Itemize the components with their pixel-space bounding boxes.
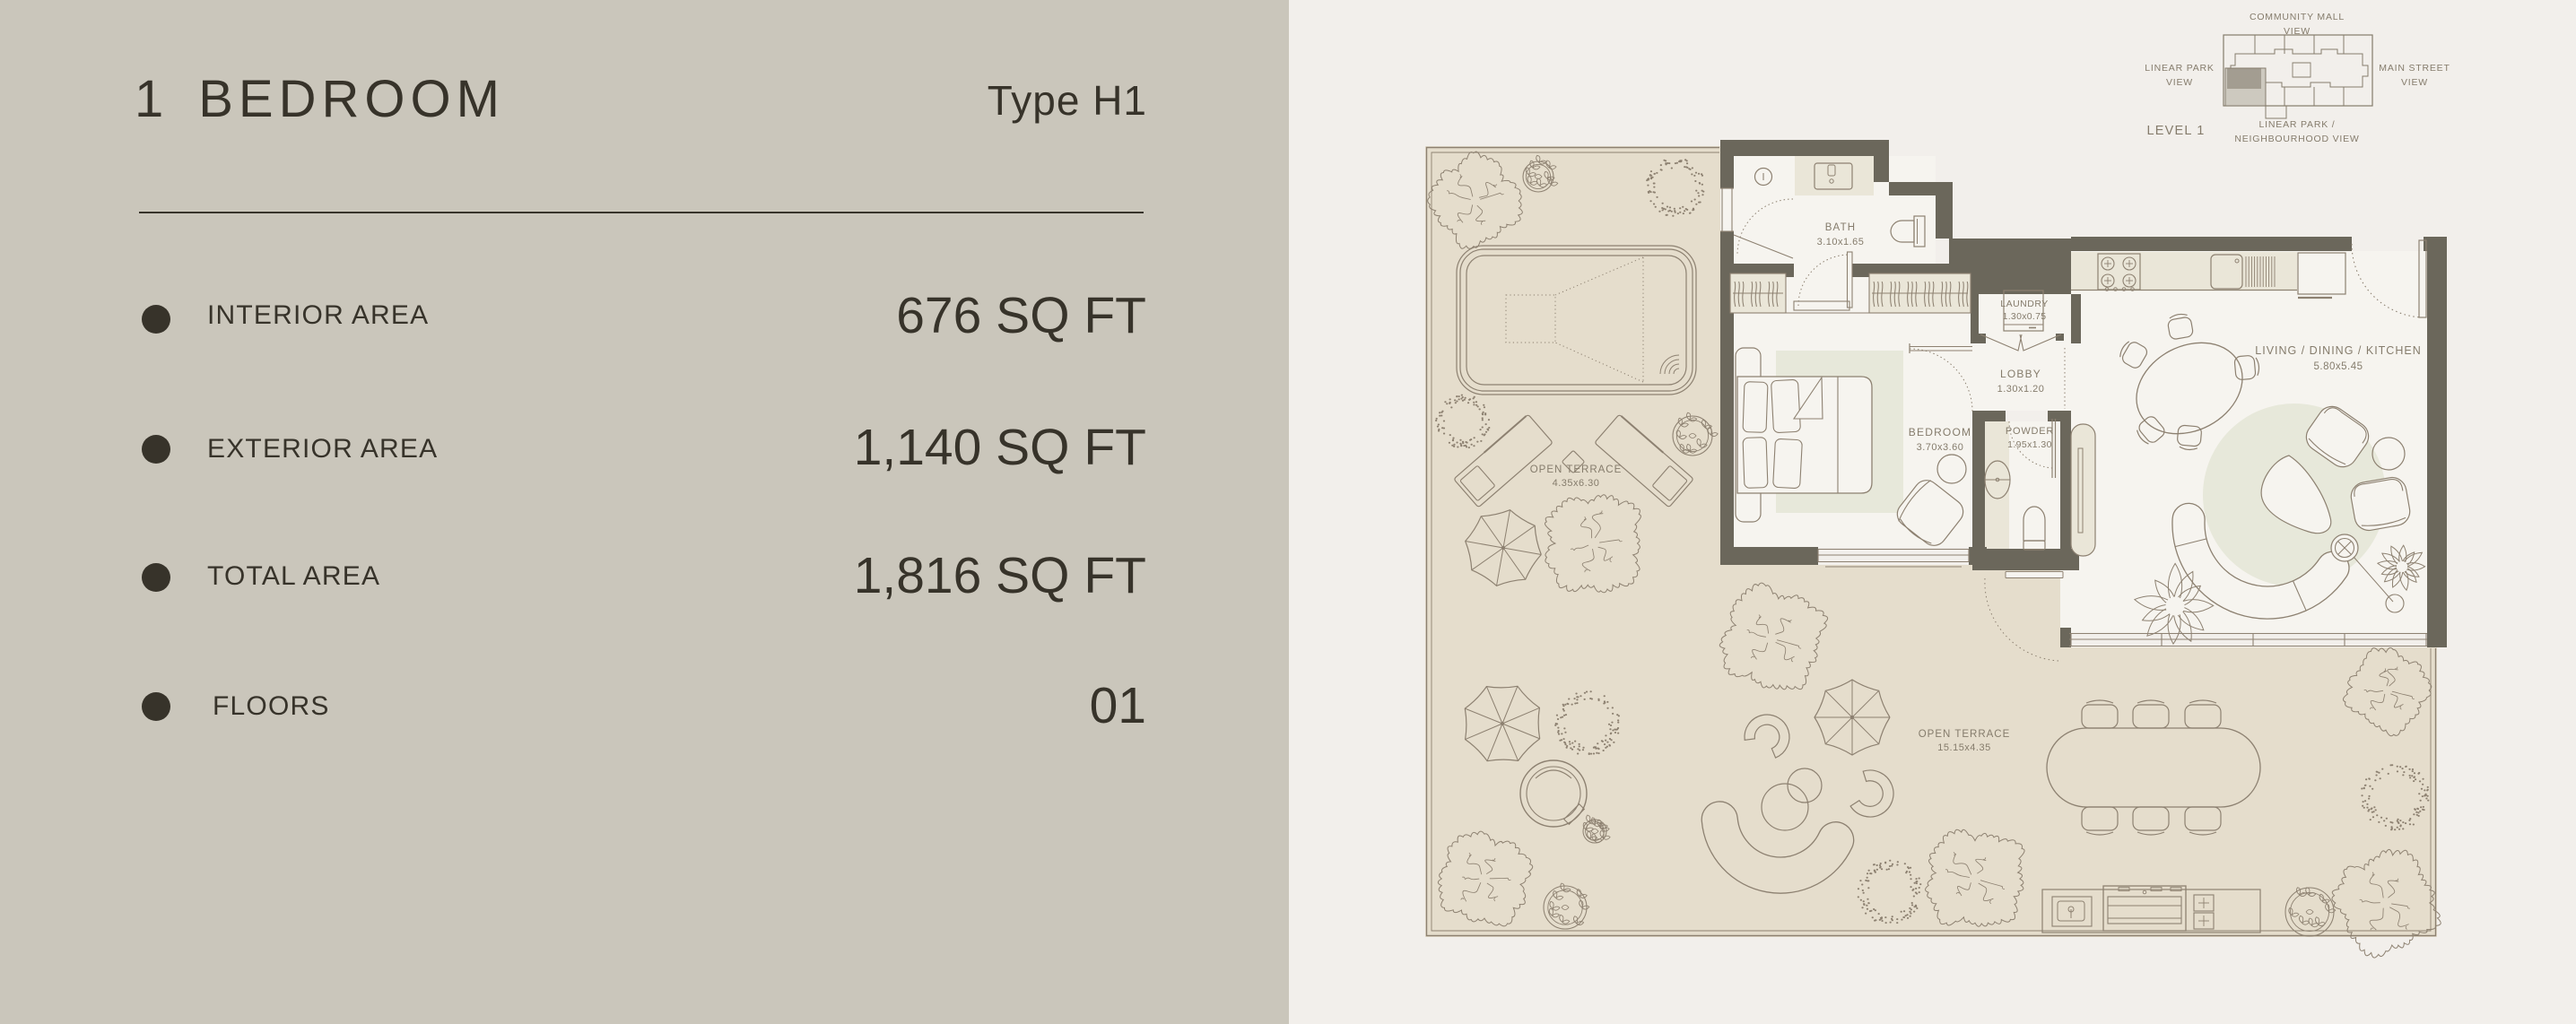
svg-text:3.70x3.60: 3.70x3.60 [1917, 442, 1964, 453]
svg-text:3.10x1.65: 3.10x1.65 [1817, 237, 1865, 247]
svg-text:OPEN TERRACE: OPEN TERRACE [1919, 729, 2011, 740]
svg-text:NEIGHBOURHOOD VIEW: NEIGHBOURHOOD VIEW [2234, 134, 2359, 144]
svg-text:MAIN STREET: MAIN STREET [2379, 63, 2450, 74]
svg-text:5.80x5.45: 5.80x5.45 [2313, 361, 2363, 372]
svg-text:COMMUNITY MALL: COMMUNITY MALL [2250, 12, 2345, 22]
svg-text:1.95x1.30: 1.95x1.30 [2007, 439, 2052, 450]
svg-text:BEDROOM: BEDROOM [1909, 426, 1971, 438]
svg-text:LIVING / DINING / KITCHEN: LIVING / DINING / KITCHEN [2255, 344, 2421, 357]
svg-text:LOBBY: LOBBY [2000, 368, 2041, 380]
svg-text:1.30x0.75: 1.30x0.75 [2003, 311, 2047, 322]
svg-text:4.35x6.30: 4.35x6.30 [1553, 478, 1600, 489]
svg-text:VIEW: VIEW [2401, 77, 2428, 88]
svg-text:POWDER: POWDER [2006, 426, 2054, 437]
svg-text:LAUNDRY: LAUNDRY [2000, 299, 2049, 309]
svg-text:1.30x1.20: 1.30x1.20 [1997, 384, 2045, 395]
svg-text:VIEW: VIEW [2166, 77, 2193, 88]
svg-text:BATH: BATH [1825, 222, 1857, 233]
svg-text:LINEAR PARK: LINEAR PARK [2145, 63, 2214, 74]
svg-text:VIEW: VIEW [2284, 26, 2311, 37]
svg-text:LEVEL 1: LEVEL 1 [2146, 124, 2205, 138]
svg-text:15.15x4.35: 15.15x4.35 [1937, 742, 1990, 753]
svg-text:LINEAR PARK /: LINEAR PARK / [2259, 119, 2336, 130]
svg-text:OPEN TERRACE: OPEN TERRACE [1530, 464, 1623, 475]
